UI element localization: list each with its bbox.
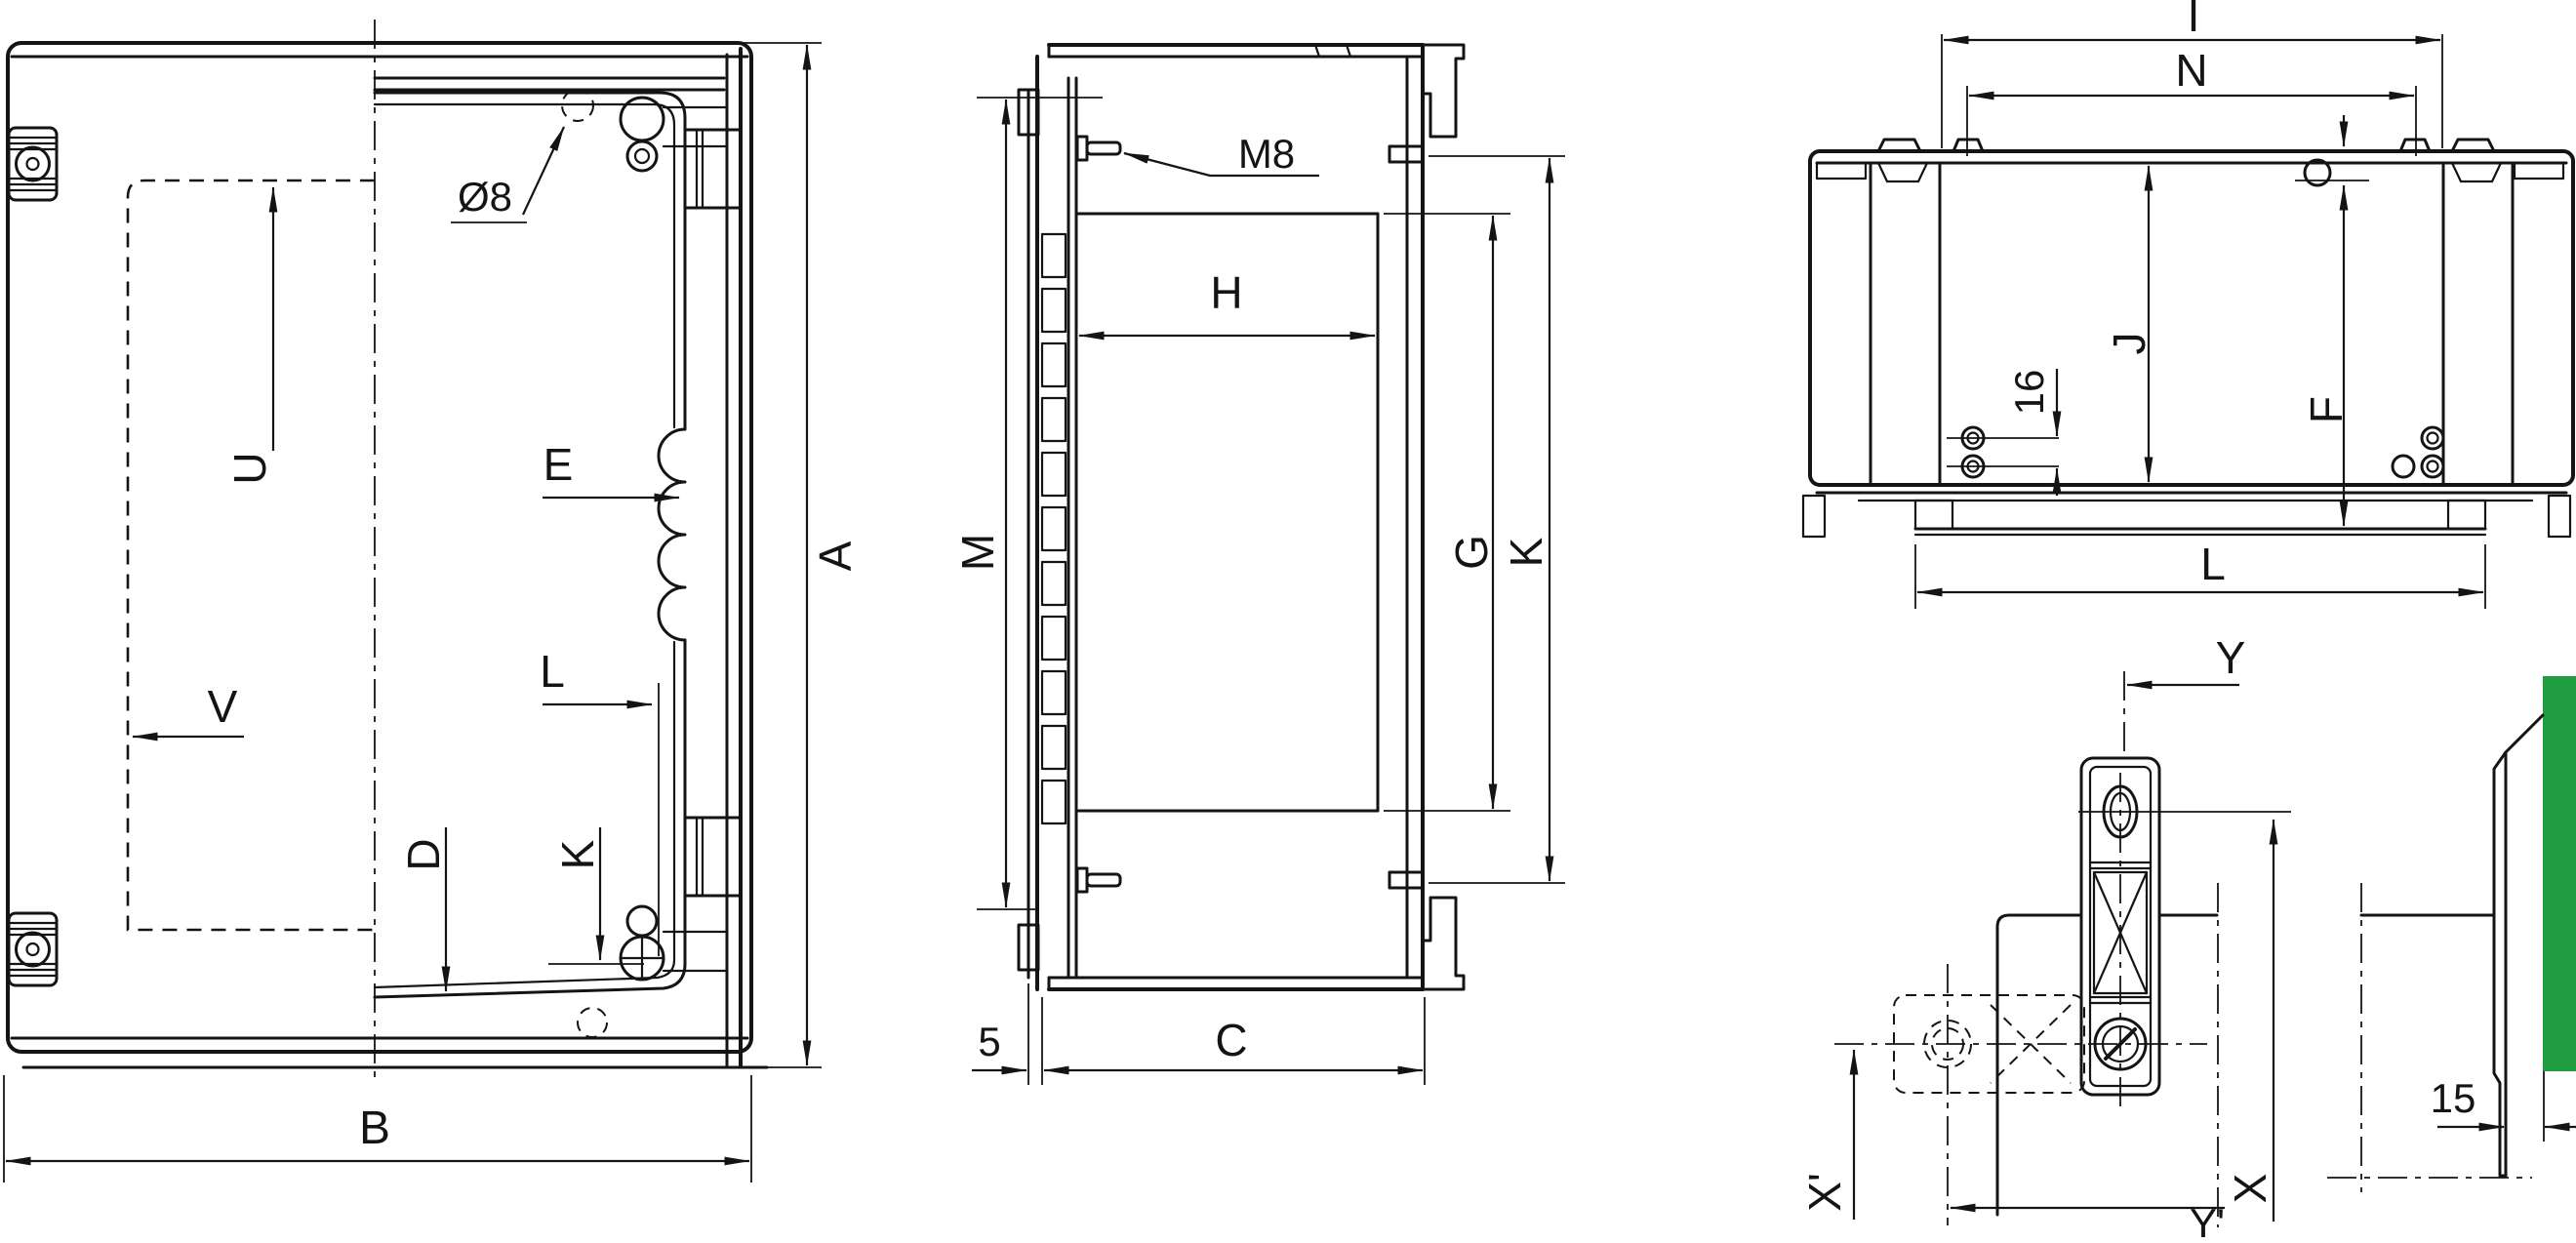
- front-hinge-block-top: [685, 130, 741, 208]
- m8-stud-bottom: [1077, 868, 1120, 892]
- dim-X-label: X: [2225, 1174, 2275, 1204]
- door-swing-dashed-rect: [128, 180, 375, 930]
- side-section-view: M8 H M G K 5 C: [952, 45, 1565, 1085]
- dim-K2-label: K: [1501, 537, 1551, 567]
- front-door-outline: [8, 43, 751, 1052]
- dim-L-label: L: [540, 646, 565, 697]
- technical-drawing-page: Ø8 U V E L D K A B: [0, 0, 2576, 1243]
- dim-M-label: M: [952, 534, 1003, 571]
- rear-view: I N J F 16: [1803, 0, 2573, 609]
- dim-15-label: 15: [2431, 1075, 2476, 1121]
- dim-Y-label: Y: [2216, 632, 2246, 683]
- dim-G-label: G: [1446, 535, 1497, 570]
- bracket-detail-view: Y X': [1799, 632, 2576, 1243]
- dia8-label: Ø8: [458, 174, 512, 220]
- m8-label: M8: [1238, 131, 1295, 177]
- seal-corrugation: [659, 429, 685, 640]
- front-view: Ø8 U V E L D K A B: [4, 20, 861, 1183]
- bottom-rear-hook: [1423, 898, 1464, 989]
- dim-I-label: I: [2188, 0, 2200, 41]
- wall-side-subview: 15: [2327, 676, 2576, 1192]
- dim-5-label: 5: [978, 1019, 1000, 1064]
- dim-A-label: A: [810, 541, 861, 571]
- dim-K-label: K: [552, 839, 603, 869]
- rear-body-outline: [1810, 151, 2573, 485]
- dim-J-label: J: [2104, 333, 2154, 355]
- dim-U-label: U: [224, 452, 275, 484]
- dim-B-label: B: [359, 1103, 390, 1154]
- wall-green-bar: [2543, 676, 2576, 1071]
- dashed-hole-bottom: [578, 1008, 607, 1037]
- dim-16-label: 16: [2006, 370, 2052, 416]
- dim-C-label: C: [1215, 1015, 1247, 1065]
- rear-panel-profile: [2494, 752, 2506, 1176]
- dim-L3-label: L: [2200, 539, 2226, 589]
- front-lock-top: [9, 128, 57, 200]
- dim-N-label: N: [2175, 45, 2207, 96]
- rear-bolt-holes: [1962, 427, 2443, 477]
- dim-F-label: F: [2301, 396, 2352, 423]
- dim-E-label: E: [543, 439, 574, 490]
- dim-V-label: V: [208, 681, 238, 732]
- dim-D-label: D: [398, 838, 449, 870]
- enclosure-dimension-drawing: Ø8 U V E L D K A B: [0, 0, 2576, 1243]
- front-lock-bottom: [9, 913, 57, 985]
- dim-Xp-label: X': [1799, 1173, 1850, 1211]
- dim-Yp-label: Y': [2190, 1200, 2225, 1243]
- top-rear-hook: [1423, 45, 1464, 137]
- hinge-knuckles: [1042, 234, 1066, 823]
- front-hinge-block-bottom: [685, 818, 741, 896]
- m8-stud-top: [1077, 137, 1120, 160]
- dim-H-label: H: [1210, 267, 1242, 318]
